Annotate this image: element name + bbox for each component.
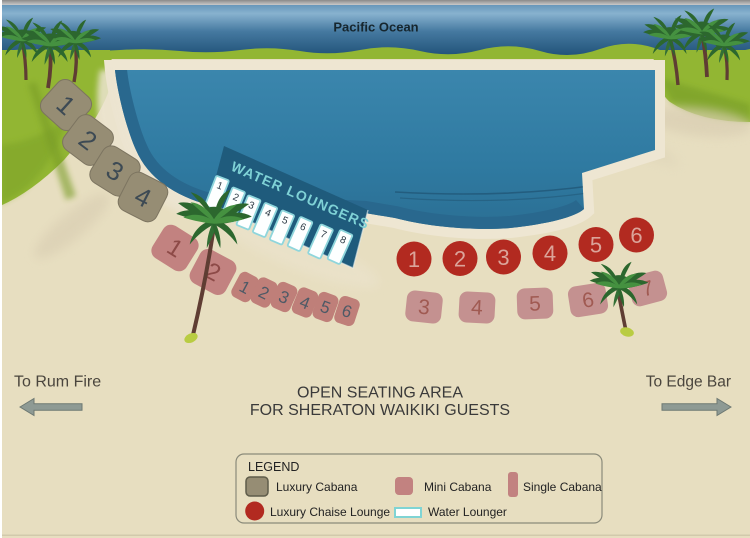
svg-text:To Edge Bar: To Edge Bar <box>646 374 731 391</box>
svg-text:OPEN SEATING AREA: OPEN SEATING AREA <box>297 385 463 402</box>
svg-text:Luxury Chaise Lounge: Luxury Chaise Lounge <box>270 505 390 519</box>
svg-text:Water Lounger: Water Lounger <box>428 505 507 519</box>
svg-text:FOR SHERATON WAIKIKI GUESTS: FOR SHERATON WAIKIKI GUESTS <box>250 402 510 419</box>
svg-text:Mini Cabana: Mini Cabana <box>424 480 492 494</box>
svg-text:5: 5 <box>590 233 602 258</box>
svg-text:2: 2 <box>454 247 466 272</box>
svg-text:6: 6 <box>630 223 642 248</box>
svg-text:1: 1 <box>408 247 420 272</box>
svg-text:4: 4 <box>471 296 484 320</box>
svg-text:LEGEND: LEGEND <box>248 460 299 474</box>
svg-text:To Rum Fire: To Rum Fire <box>14 374 101 391</box>
svg-text:3: 3 <box>417 295 431 319</box>
svg-text:4: 4 <box>544 241 556 266</box>
svg-text:Single Cabana: Single Cabana <box>523 480 602 494</box>
svg-text:3: 3 <box>497 245 509 270</box>
svg-text:5: 5 <box>529 292 541 315</box>
svg-text:Pacific Ocean: Pacific Ocean <box>333 20 418 35</box>
svg-text:Luxury Cabana: Luxury Cabana <box>276 480 358 494</box>
